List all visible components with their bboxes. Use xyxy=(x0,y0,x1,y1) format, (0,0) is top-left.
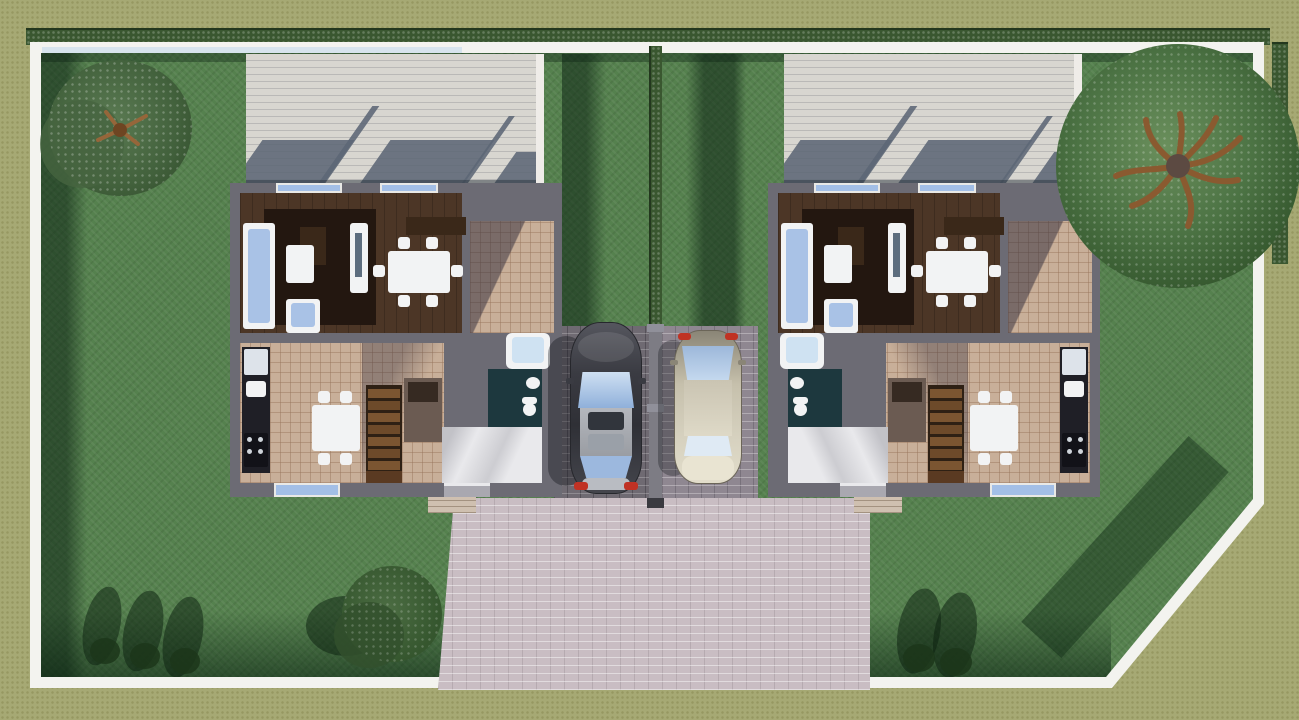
tree-bottom xyxy=(334,562,450,674)
car-rear-window xyxy=(580,456,632,478)
site-plan-render xyxy=(0,0,1299,720)
entry-porch-steps xyxy=(428,497,476,513)
kitchen-chair xyxy=(1000,453,1012,465)
stove-burner xyxy=(1078,437,1083,442)
bathtub-water xyxy=(786,337,818,363)
tree-top-left xyxy=(40,56,200,202)
dining-chair xyxy=(373,265,385,277)
entry-hall-floor xyxy=(788,427,888,483)
terrace-top-wall xyxy=(470,209,562,221)
rear-patio-left xyxy=(246,54,544,187)
bathtub-water xyxy=(512,337,544,363)
window xyxy=(814,183,880,193)
stair-landing xyxy=(366,471,402,483)
patio-side-wall xyxy=(536,54,544,187)
stair-tread xyxy=(930,389,962,398)
stair-landing xyxy=(928,471,964,483)
sofa-cushions xyxy=(248,229,270,323)
washbasin xyxy=(790,377,804,389)
tree-branches-svg xyxy=(1088,76,1268,256)
car-mirror xyxy=(566,378,574,384)
stair-tread xyxy=(930,425,962,434)
dining-table xyxy=(926,251,988,293)
house-lower-rooms xyxy=(768,333,1100,513)
washbasin xyxy=(526,377,540,389)
car-hood-highlight xyxy=(578,332,634,362)
fridge xyxy=(1062,349,1086,375)
stair-tread xyxy=(930,437,962,446)
dining-chair xyxy=(426,237,438,249)
car-mirror xyxy=(670,360,678,365)
tv-panel xyxy=(355,233,362,277)
kitchen-chair xyxy=(340,453,352,465)
car-mirror xyxy=(738,360,746,365)
car-rear-window xyxy=(682,346,734,380)
car-hood xyxy=(682,456,734,480)
tree-canopy-speckle xyxy=(342,566,442,662)
car-trunk xyxy=(582,478,630,490)
entry-door xyxy=(444,483,490,497)
stair-tread xyxy=(368,389,400,398)
entry-porch-steps xyxy=(854,497,902,513)
sideboard xyxy=(406,217,466,235)
sofa-cushions xyxy=(786,229,808,323)
driveway-apron xyxy=(438,498,870,690)
dining-chair xyxy=(911,265,923,277)
stair-tread xyxy=(368,461,400,470)
sideboard xyxy=(944,217,1004,235)
tree-branches-svg xyxy=(80,94,160,164)
divider-wall-post xyxy=(647,498,664,508)
closet-shelf xyxy=(408,382,438,402)
kitchen-chair xyxy=(318,453,330,465)
car-roof xyxy=(684,380,732,436)
car-taillight xyxy=(725,333,738,340)
car-right xyxy=(672,330,744,486)
dining-chair xyxy=(936,237,948,249)
kitchen-chair xyxy=(978,453,990,465)
car-windshield xyxy=(578,372,634,408)
divider-wall-post xyxy=(647,324,664,332)
window xyxy=(276,183,342,193)
toilet-bowl xyxy=(794,403,807,416)
kitchen-chair xyxy=(1000,391,1012,403)
window xyxy=(380,183,438,193)
stair-tread xyxy=(368,449,400,458)
bush xyxy=(130,643,160,669)
stair-tread xyxy=(368,413,400,422)
lot-divider-hedge xyxy=(649,46,662,326)
dining-chair xyxy=(398,237,410,249)
stair-tread xyxy=(930,449,962,458)
stair-tread xyxy=(930,461,962,470)
kitchen-chair xyxy=(978,391,990,403)
car-taillight xyxy=(574,482,588,490)
dining-chair xyxy=(989,265,1001,277)
kitchen-table xyxy=(312,405,360,451)
fridge xyxy=(244,349,268,375)
house-left xyxy=(230,183,562,513)
dining-chair xyxy=(451,265,463,277)
house-upper-rooms xyxy=(768,183,1100,333)
kitchen-window xyxy=(990,483,1056,497)
kitchen-sink xyxy=(246,381,266,397)
dining-chair xyxy=(936,295,948,307)
dining-chair xyxy=(964,237,976,249)
stair-tread xyxy=(368,401,400,410)
stove-burner xyxy=(258,437,263,442)
car-roof-panel xyxy=(588,434,624,450)
stair-tread xyxy=(368,425,400,434)
stove-burner xyxy=(1067,437,1072,442)
armchair-cushion xyxy=(829,303,853,327)
boundary-sky-reflection xyxy=(42,47,462,54)
stove-burner xyxy=(1067,449,1072,454)
dining-chair xyxy=(398,295,410,307)
dining-chair xyxy=(964,295,976,307)
car-left xyxy=(566,322,646,498)
bush xyxy=(170,648,200,674)
stair-tread xyxy=(930,413,962,422)
toilet-bowl xyxy=(523,403,536,416)
stair-tread xyxy=(930,401,962,410)
kitchen-chair xyxy=(318,391,330,403)
coffee-table xyxy=(824,245,852,283)
dining-chair xyxy=(426,295,438,307)
rear-patio-right xyxy=(784,54,1082,187)
house-lower-rooms xyxy=(230,333,562,513)
kitchen-table xyxy=(970,405,1018,451)
tv-panel xyxy=(893,233,900,277)
stove-burner xyxy=(1078,449,1083,454)
tree-top-right xyxy=(1056,44,1299,288)
house-shadow-mid-right xyxy=(686,54,746,326)
car-mirror xyxy=(638,378,646,384)
bush xyxy=(903,644,935,672)
entry-hall-floor xyxy=(442,427,542,483)
stove-burner xyxy=(247,437,252,442)
house-shadow-mid-left xyxy=(562,54,606,326)
terrace-shadow xyxy=(470,221,554,333)
coffee-table xyxy=(286,245,314,283)
car-sunroof xyxy=(588,412,624,430)
terrace-side-wall xyxy=(554,221,562,333)
bush xyxy=(940,648,972,676)
car-taillight xyxy=(678,333,691,340)
house-right xyxy=(768,183,1100,513)
house-upper-rooms xyxy=(230,183,562,333)
kitchen-chair xyxy=(340,391,352,403)
car-windshield xyxy=(684,436,732,456)
car-taillight xyxy=(624,482,638,490)
kitchen-window xyxy=(274,483,340,497)
window xyxy=(918,183,976,193)
bush xyxy=(90,638,120,664)
dining-table xyxy=(388,251,450,293)
kitchen-sink xyxy=(1064,381,1084,397)
stove-burner xyxy=(247,449,252,454)
stair-tread xyxy=(368,437,400,446)
armchair-cushion xyxy=(291,303,315,327)
stove-burner xyxy=(258,449,263,454)
closet-shelf xyxy=(892,382,922,402)
entry-door xyxy=(840,483,886,497)
